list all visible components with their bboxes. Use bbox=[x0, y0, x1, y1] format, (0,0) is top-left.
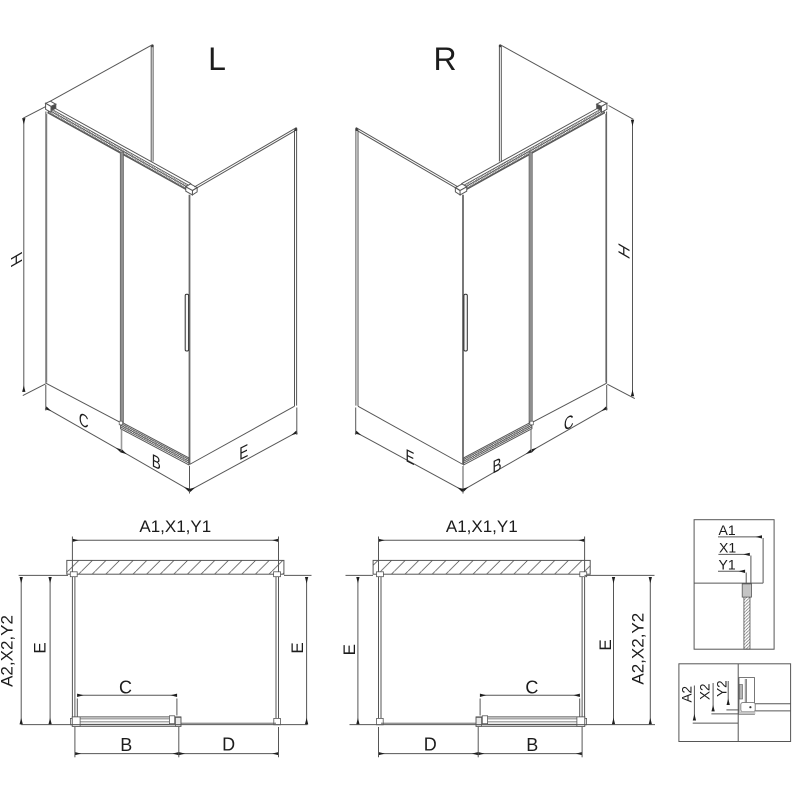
svg-text:D: D bbox=[222, 735, 235, 755]
svg-text:A1,X1,Y1: A1,X1,Y1 bbox=[139, 517, 211, 536]
svg-text:E: E bbox=[239, 440, 248, 465]
svg-text:Y2: Y2 bbox=[715, 680, 730, 697]
svg-text:C: C bbox=[525, 677, 538, 697]
svg-text:E: E bbox=[405, 445, 414, 470]
svg-text:C: C bbox=[79, 408, 89, 433]
svg-text:B: B bbox=[152, 450, 161, 475]
svg-text:A2: A2 bbox=[680, 686, 695, 703]
svg-text:B: B bbox=[526, 735, 538, 755]
svg-text:Y1: Y1 bbox=[719, 557, 736, 573]
svg-text:E: E bbox=[340, 644, 359, 655]
svg-text:H: H bbox=[615, 240, 634, 262]
svg-text:A2,X2,Y2: A2,X2,Y2 bbox=[629, 613, 648, 685]
svg-text:E: E bbox=[596, 639, 615, 650]
svg-text:E: E bbox=[31, 642, 50, 653]
svg-text:E: E bbox=[288, 642, 307, 653]
svg-text:B: B bbox=[492, 453, 501, 478]
svg-text:R: R bbox=[433, 41, 456, 77]
svg-text:B: B bbox=[120, 735, 132, 755]
svg-text:D: D bbox=[424, 735, 437, 755]
svg-text:L: L bbox=[208, 41, 226, 77]
svg-text:A2,X2,Y2: A2,X2,Y2 bbox=[0, 615, 17, 687]
svg-text:A1,X1,Y1: A1,X1,Y1 bbox=[446, 517, 518, 536]
svg-text:H: H bbox=[7, 248, 26, 270]
svg-text:X1: X1 bbox=[719, 540, 736, 556]
svg-text:X2: X2 bbox=[698, 684, 713, 701]
svg-text:C: C bbox=[564, 410, 574, 435]
svg-text:C: C bbox=[119, 677, 132, 697]
svg-text:A1: A1 bbox=[719, 522, 736, 538]
